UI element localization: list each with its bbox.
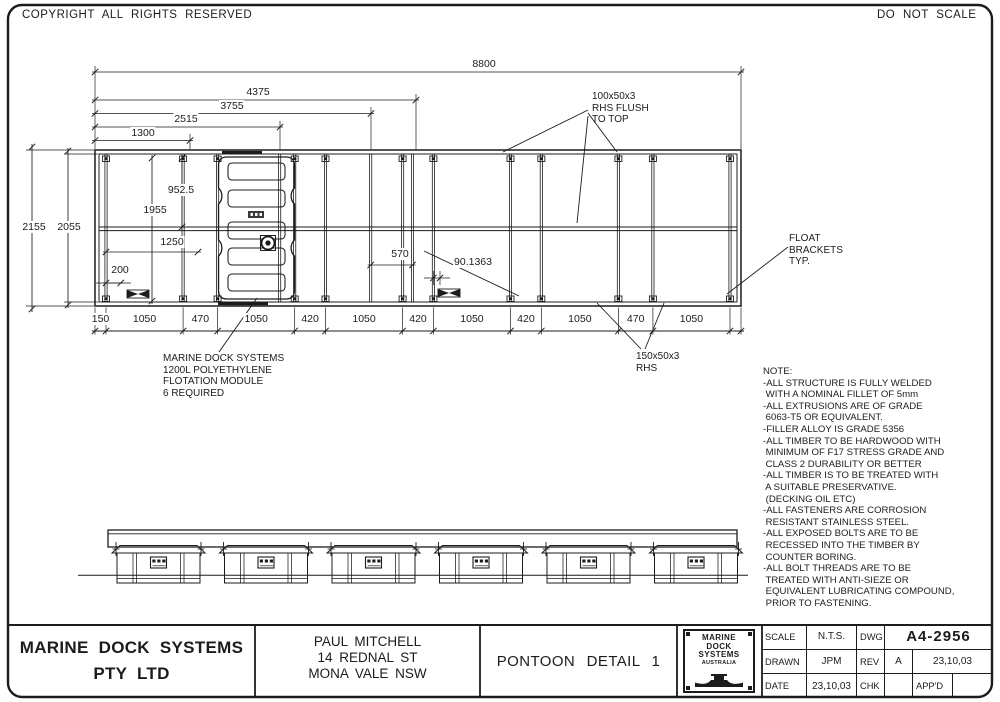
grid-row-3: DATE 23,10,03 CHK APP'D	[762, 674, 992, 698]
rev-label: REV	[856, 650, 884, 674]
date-value: 23,10,03	[806, 674, 856, 698]
bottom-dim-0: 150	[91, 313, 111, 325]
notes-items: -ALL STRUCTURE IS FULLY WELDED WITH A NO…	[763, 378, 991, 610]
bottom-dim-11: 1050	[679, 313, 704, 325]
drawn-value: JPM	[806, 650, 856, 674]
bottom-dim-3: 1050	[243, 313, 268, 325]
notes-title: NOTE:	[763, 366, 991, 378]
dim-1955: 1955	[142, 204, 167, 216]
dim-4375: 4375	[245, 86, 270, 98]
logo-line-2: SYSTEMS	[685, 651, 753, 660]
copyright-text: COPYRIGHT ALL RIGHTS RESERVED	[22, 9, 252, 21]
rev-value: A	[884, 650, 912, 674]
drawing-sheet: COPYRIGHT ALL RIGHTS RESERVED DO NOT SCA…	[0, 0, 1000, 702]
note-item-3: -ALL TIMBER TO BE HARDWOOD WITH MINIMUM …	[763, 436, 991, 471]
bottom-dim-4: 420	[300, 313, 320, 325]
anchor-icon	[693, 673, 745, 689]
chk-value	[884, 674, 912, 698]
do-not-scale-text: DO NOT SCALE	[877, 9, 976, 21]
client-line-1: 14 REDNAL ST	[257, 650, 478, 666]
dwg-label: DWG	[856, 625, 884, 649]
dim-2155: 2155	[21, 221, 46, 233]
date-label: DATE	[762, 674, 806, 698]
drawing-title: PONTOON DETAIL 1	[482, 625, 675, 697]
chk-label: CHK	[856, 674, 884, 698]
dim-1250: 1250	[159, 236, 184, 248]
title-block-grid: SCALE N.T.S. DWG A4-2956 DRAWN JPM REV A…	[762, 625, 992, 698]
client-line-0: PAUL MITCHELL	[257, 634, 478, 650]
elevation-view	[78, 530, 748, 583]
label-rhs-top: 100x50x3 RHS FLUSH TO TOP	[592, 91, 649, 126]
dim-570: 570	[390, 248, 410, 260]
note-item-5: -ALL FASTENERS ARE CORROSION RESISTANT S…	[763, 505, 991, 528]
rev-date: 23,10,03	[912, 650, 992, 674]
appd-label: APP'D	[912, 674, 952, 698]
flotation-module-plan	[219, 157, 295, 299]
company-name: MARINE DOCK SYSTEMS PTY LTD	[10, 635, 253, 687]
dwg-number: A4-2956	[884, 625, 992, 649]
drawn-label: DRAWN	[762, 650, 806, 674]
logo-dot	[748, 632, 752, 636]
client-address: PAUL MITCHELL14 REDNAL STMONA VALE NSW	[257, 634, 478, 681]
note-item-4: -ALL TIMBER IS TO BE TREATED WITH A SUIT…	[763, 470, 991, 505]
plan-members	[105, 155, 731, 302]
plan-clips	[103, 156, 734, 302]
note-item-6: -ALL EXPOSED BOLTS ARE TO BE RECESSED IN…	[763, 528, 991, 563]
dim-3755: 3755	[219, 100, 244, 112]
dim-2515: 2515	[173, 113, 198, 125]
dim-1300: 1300	[130, 127, 155, 139]
logo-line-3: AUSTRALIA	[685, 660, 753, 666]
label-flotation-module: MARINE DOCK SYSTEMS 1200L POLYETHYLENE F…	[163, 353, 284, 399]
dim-952-5: 952.5	[167, 184, 195, 196]
note-item-2: -FILLER ALLOY IS GRADE 5356	[763, 424, 991, 436]
notes-block: NOTE: -ALL STRUCTURE IS FULLY WELDED WIT…	[763, 366, 991, 609]
plan-frame	[95, 150, 741, 306]
dim-8800: 8800	[471, 58, 496, 70]
dim-90-1363: 90.1363	[453, 256, 493, 268]
label-rhs-bottom: 150x50x3 RHS	[636, 351, 679, 374]
grid-row-2: DRAWN JPM REV A 23,10,03	[762, 650, 992, 675]
logo-dot	[686, 632, 690, 636]
bottom-dim-10: 470	[626, 313, 646, 325]
logo-dot	[686, 686, 690, 690]
logo-text: MARINEDOCKSYSTEMSAUSTRALIA	[685, 634, 753, 666]
scale-value: N.T.S.	[806, 625, 856, 649]
bottom-dim-5: 1050	[351, 313, 376, 325]
scale-label: SCALE	[762, 625, 806, 649]
company-logo: MARINEDOCKSYSTEMSAUSTRALIA	[683, 629, 755, 693]
dim-200: 200	[110, 264, 130, 276]
note-item-7: -ALL BOLT THREADS ARE TO BE TREATED WITH…	[763, 563, 991, 609]
bottom-dim-1: 1050	[132, 313, 157, 325]
label-float-brackets: FLOAT BRACKETS TYP.	[789, 233, 843, 268]
dim-2055: 2055	[56, 221, 81, 233]
bottom-dim-2: 470	[191, 313, 211, 325]
bottom-dim-8: 420	[516, 313, 536, 325]
grid-row-1: SCALE N.T.S. DWG A4-2956	[762, 625, 992, 650]
bottom-dim-6: 420	[408, 313, 428, 325]
logo-dot	[748, 686, 752, 690]
note-item-0: -ALL STRUCTURE IS FULLY WELDED WITH A NO…	[763, 378, 991, 401]
bottom-dim-9: 1050	[567, 313, 592, 325]
note-item-1: -ALL EXTRUSIONS ARE OF GRADE 6063-T5 OR …	[763, 401, 991, 424]
bottom-dim-7: 1050	[459, 313, 484, 325]
appd-value	[952, 674, 992, 698]
client-line-2: MONA VALE NSW	[257, 666, 478, 682]
